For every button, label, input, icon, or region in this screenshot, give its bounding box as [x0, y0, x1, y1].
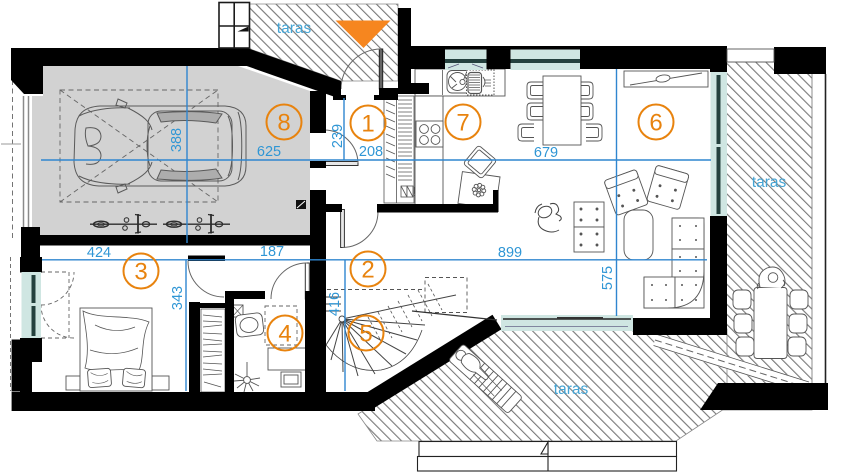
svg-text:8: 8 — [277, 110, 290, 137]
svg-text:taras: taras — [277, 20, 312, 37]
svg-text:7: 7 — [456, 110, 469, 137]
svg-text:679: 679 — [534, 145, 558, 161]
svg-text:3: 3 — [134, 259, 147, 286]
svg-text:187: 187 — [260, 244, 284, 260]
svg-text:424: 424 — [87, 245, 111, 261]
svg-text:4: 4 — [278, 321, 291, 348]
svg-text:388: 388 — [169, 128, 185, 152]
svg-text:899: 899 — [498, 245, 522, 261]
svg-text:taras: taras — [554, 381, 589, 398]
svg-text:239: 239 — [330, 124, 346, 148]
svg-text:6: 6 — [649, 110, 662, 137]
svg-text:taras: taras — [752, 174, 787, 191]
svg-text:625: 625 — [257, 144, 281, 160]
svg-text:343: 343 — [170, 286, 186, 310]
svg-text:208: 208 — [359, 144, 383, 160]
svg-text:416: 416 — [327, 292, 343, 316]
svg-text:2: 2 — [361, 257, 374, 284]
svg-text:575: 575 — [600, 266, 616, 290]
svg-text:1: 1 — [361, 111, 374, 138]
svg-text:5: 5 — [359, 321, 372, 348]
